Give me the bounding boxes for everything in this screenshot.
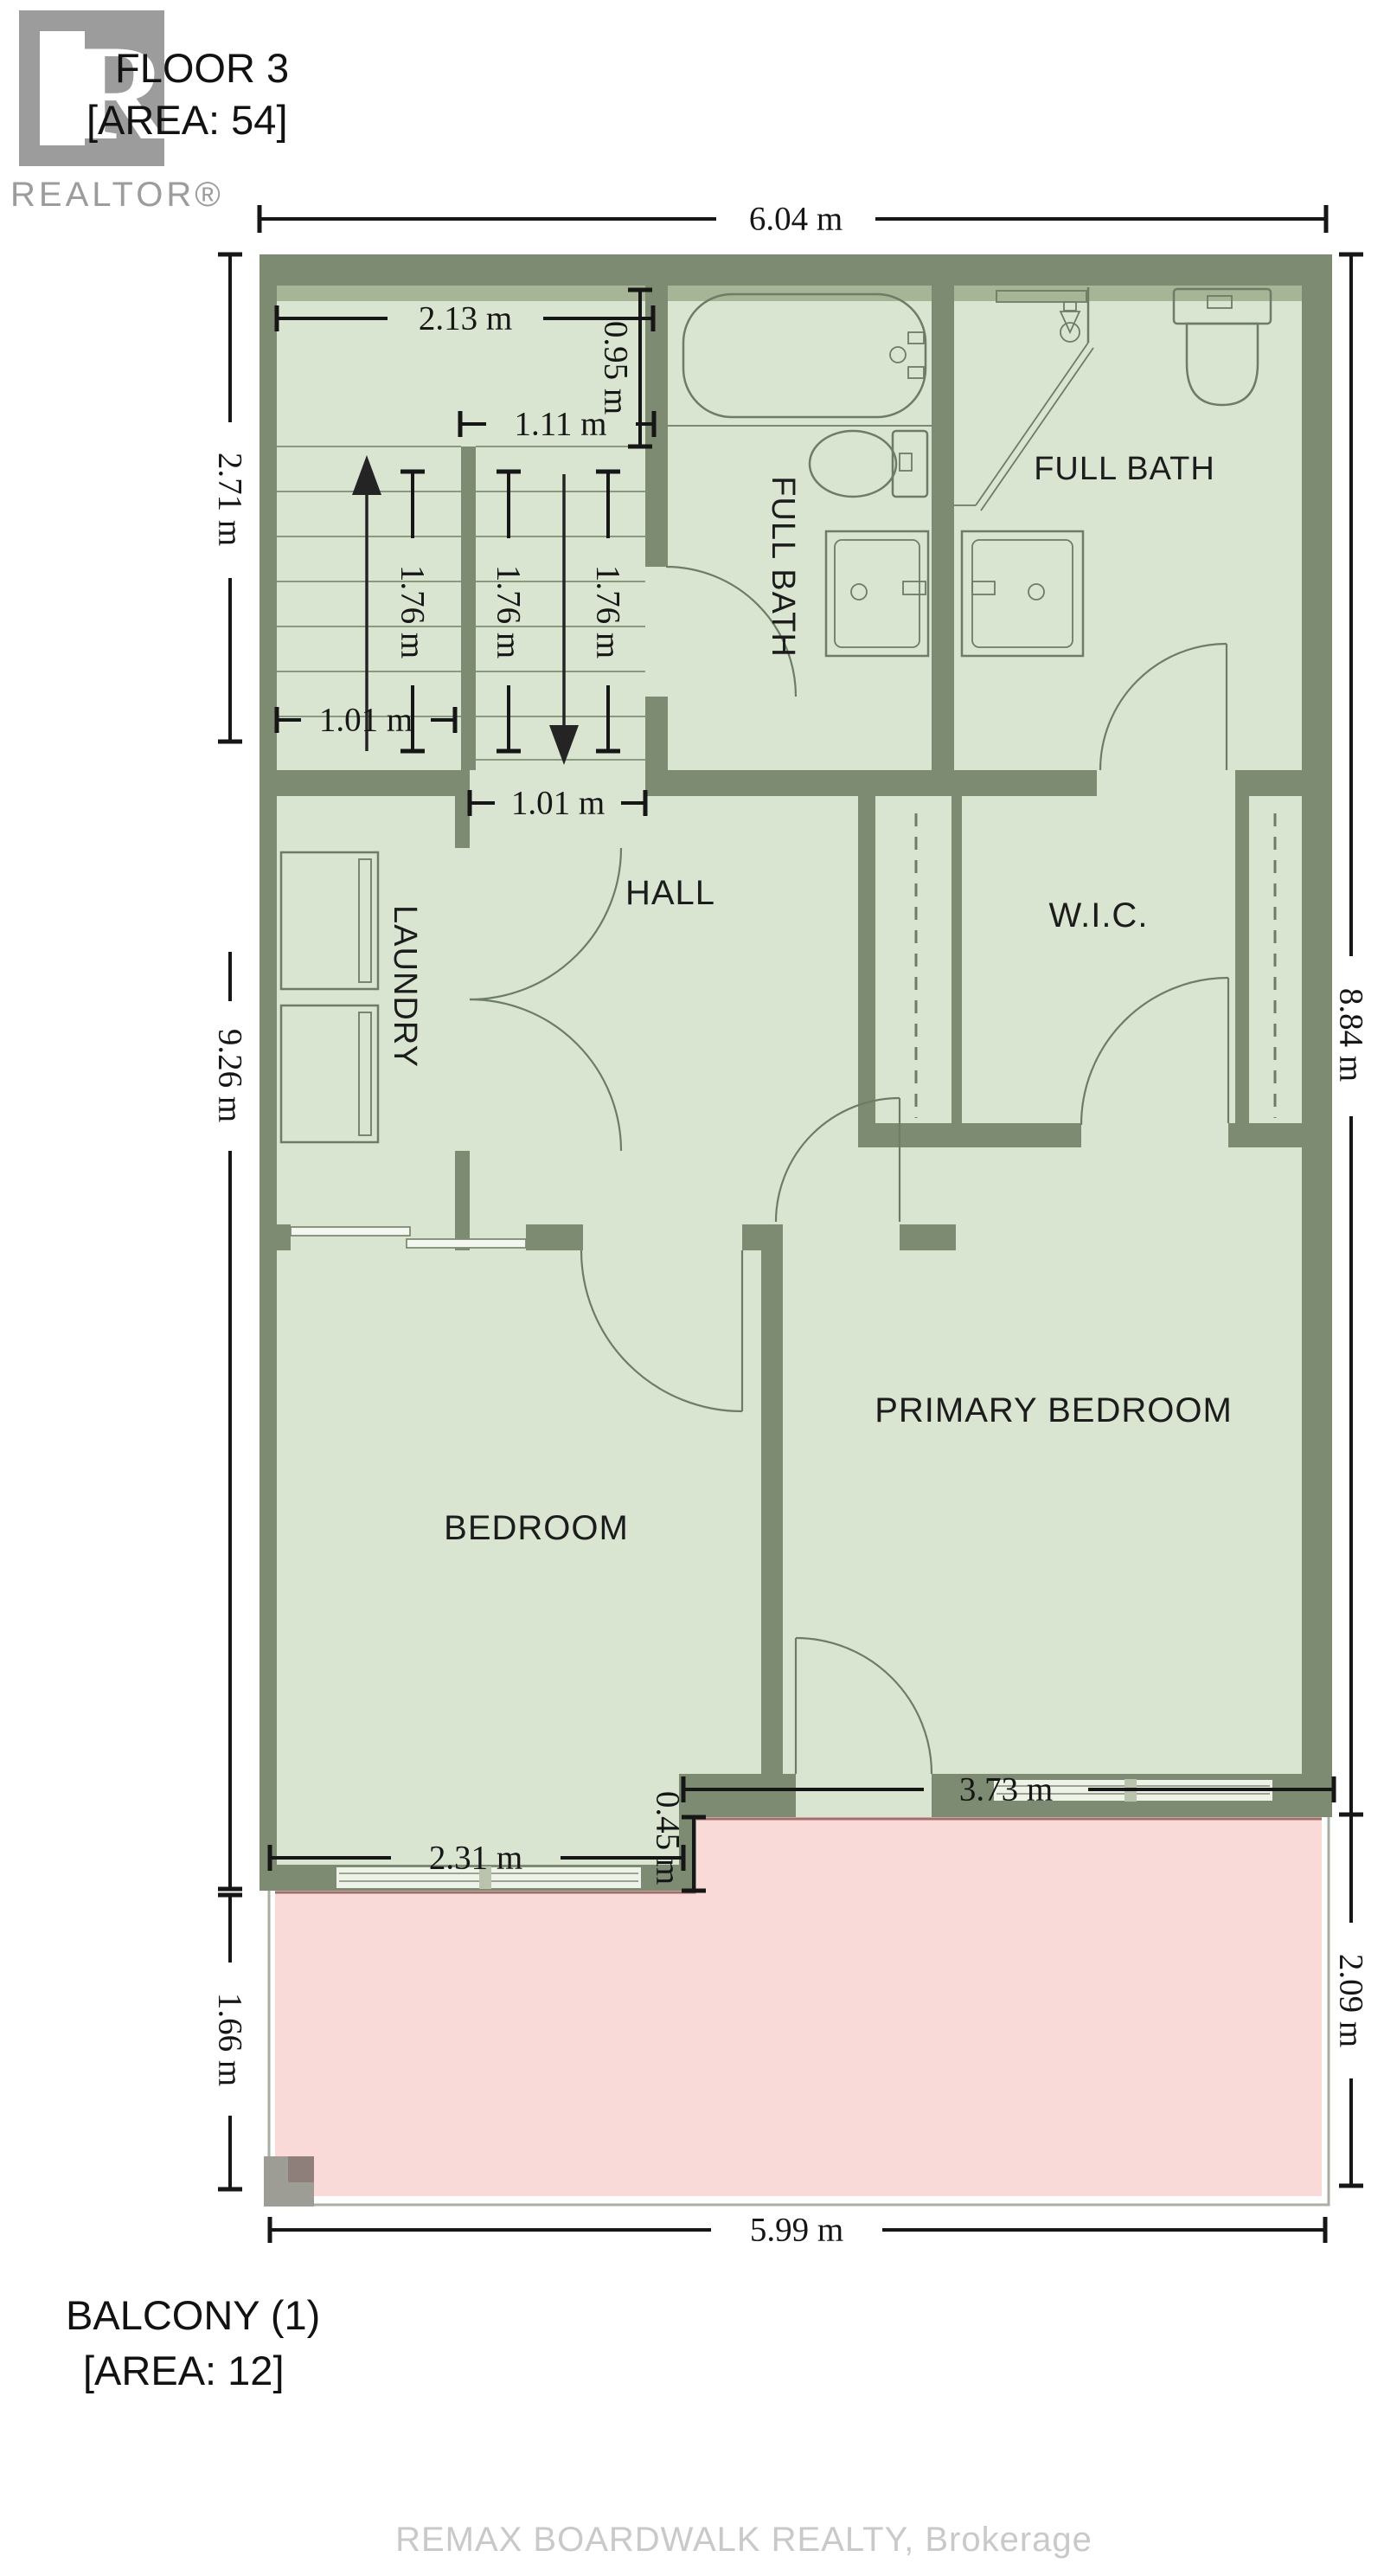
wall-primary-door-stub [900,1224,956,1250]
realtor-logo-r: R [70,17,170,169]
wall-right [1302,254,1332,1817]
balcony-door-opening [796,1774,932,1817]
dim-left-height-total: 9.26 m [212,952,249,1889]
dim-left-height-upper: 2.71 m [212,254,249,742]
room-label-wic: W.I.C. [1049,896,1149,935]
wall-stair-right-upper [645,286,668,567]
room-label-laundry: LAUNDRY [387,905,423,1068]
svg-text:1.66 m: 1.66 m [212,1993,249,2086]
wall-bedroom-divider [761,1224,783,1774]
svg-text:1.01 m: 1.01 m [511,785,605,822]
svg-text:2.71 m: 2.71 m [212,453,249,546]
wall-wic-right [1235,796,1249,1129]
wall-wic-bottom-left [858,1123,1081,1147]
wall-midband-center [645,770,1097,796]
balcony-label-group: BALCONY (1) [AREA: 12] [66,2292,320,2393]
svg-text:2.13 m: 2.13 m [419,300,512,337]
floor-area-label: [AREA: 54] [86,97,288,143]
wall-midband-left [259,770,470,796]
wall-bedroom-top-mid [526,1224,583,1250]
wall-left [259,254,277,1891]
wall-top [259,254,1332,286]
realtor-wordmark: REALTOR® [10,176,224,214]
svg-text:5.99 m: 5.99 m [750,2212,843,2249]
dim-balcony-width: 5.99 m [270,2212,1325,2249]
svg-text:1.01 m: 1.01 m [319,702,413,739]
svg-text:0.95 m: 0.95 m [598,321,635,414]
balcony-label: BALCONY (1) [66,2292,320,2338]
wall-wic-bottom-right [1228,1123,1332,1147]
wall-closet-left [858,796,875,1129]
brokerage-watermark: REMAX BOARDWALK REALTY, Brokerage [395,2521,1092,2559]
wall-bedroom-top-cap [259,1224,291,1250]
floor-plan-svg: R REALTOR® FLOOR 3 [AREA: 54] [0,0,1384,2576]
svg-text:1.76 m: 1.76 m [490,565,528,658]
svg-text:0.45 m: 0.45 m [650,1791,687,1885]
balcony-area-label: [AREA: 12] [83,2348,285,2393]
svg-text:3.73 m: 3.73 m [959,1771,1053,1808]
wall-wic-left [951,796,962,1129]
svg-text:1.11 m: 1.11 m [515,406,607,443]
svg-text:1.76 m: 1.76 m [590,565,627,658]
dim-total-width: 6.04 m [259,201,1326,238]
wall-stair-divider [461,446,476,770]
dim-right-height: 8.84 m [1333,254,1370,1815]
room-label-primary-bedroom: PRIMARY BEDROOM [875,1391,1233,1429]
dim-balcony-depth-left: 1.66 m [212,1895,249,2189]
svg-text:2.09 m: 2.09 m [1333,1954,1370,2047]
wall-bath-divider [932,286,954,770]
svg-text:6.04 m: 6.04 m [749,201,843,238]
floor-plan-page: R REALTOR® FLOOR 3 [AREA: 54] [0,0,1384,2576]
svg-text:1.76 m: 1.76 m [394,565,432,658]
dim-balcony-depth-right: 2.09 m [1333,1815,1370,2186]
room-label-hall: HALL [625,874,715,912]
svg-text:2.31 m: 2.31 m [429,1840,522,1877]
room-label-full-bath-1: FULL BATH [765,476,801,658]
wall-laundry-right-upper [455,796,470,848]
wall-midband-right [1235,770,1332,796]
floor-title: FLOOR 3 [115,45,289,91]
balcony-post-cap [288,2156,314,2182]
svg-text:9.26 m: 9.26 m [212,1029,249,1122]
wall-laundry-right-lower [455,1151,470,1250]
room-label-full-bath-2: FULL BATH [1034,451,1215,487]
room-label-bedroom: BEDROOM [444,1509,629,1547]
svg-text:8.84 m: 8.84 m [1333,988,1370,1082]
